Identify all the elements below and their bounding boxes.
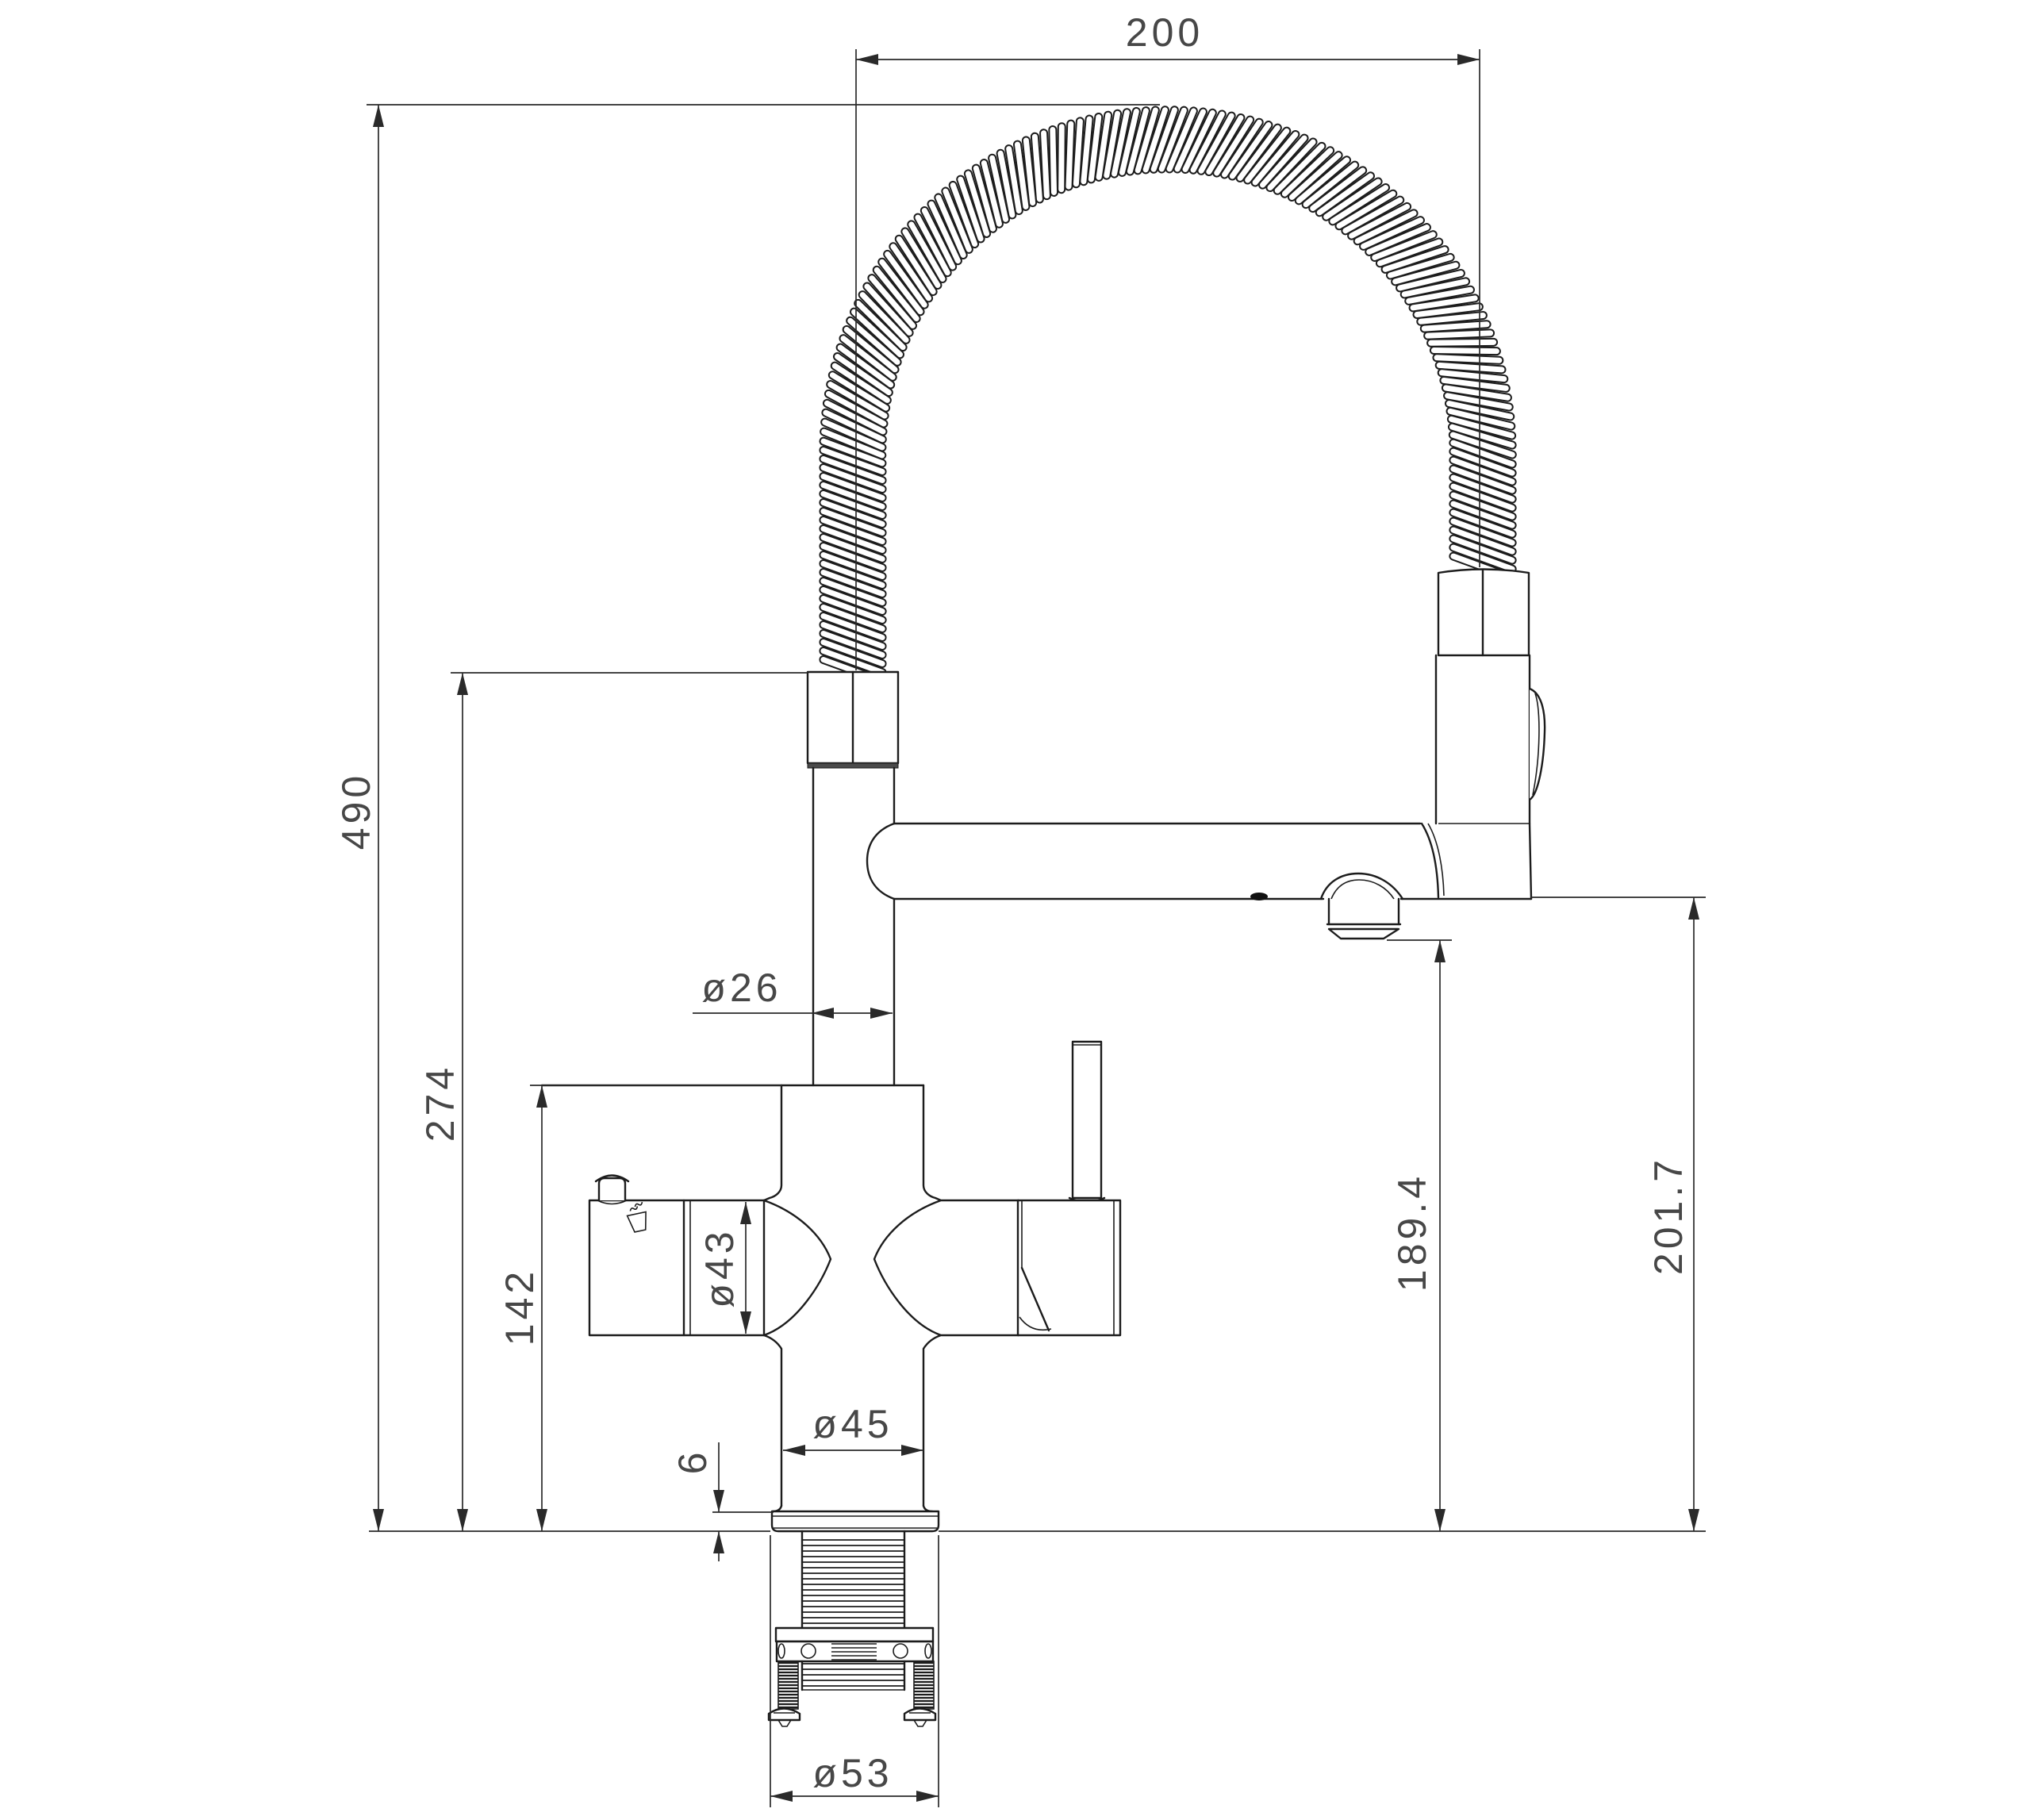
thread-lines-lower xyxy=(802,1664,904,1686)
dim-label-189-4: 189.4 xyxy=(1390,1173,1434,1292)
drawing-canvas: 200 490 274 142 ø26 ø43 xyxy=(0,0,2031,1820)
dim-label-d43: ø43 xyxy=(697,1227,742,1307)
mounting-flange xyxy=(776,1628,933,1641)
mounting-bolt-left xyxy=(769,1661,800,1726)
spring-hose xyxy=(819,106,1517,685)
thread-lines-upper xyxy=(802,1540,904,1623)
handle-lever xyxy=(1018,1042,1120,1335)
coil-bar xyxy=(1058,123,1065,193)
dim-label-6: 6 xyxy=(670,1449,715,1475)
bolt-head-left xyxy=(769,1709,800,1721)
dim-aerator-outlet-height: 189.4 xyxy=(1387,940,1452,1531)
dim-body-diameter: ø45 xyxy=(783,1402,923,1456)
left-wing-cone xyxy=(764,1200,831,1335)
dim-label-274: 274 xyxy=(418,1064,463,1142)
handle-stick xyxy=(1073,1042,1101,1198)
dim-hose-connection-height: 274 xyxy=(418,673,808,1531)
arm-end-cap xyxy=(867,824,894,899)
hose-collar-nut xyxy=(808,672,898,768)
dim-escutcheon-diameter: ø53 xyxy=(770,1535,939,1807)
threaded-shank xyxy=(769,1531,935,1726)
dim-label-d53: ø53 xyxy=(812,1751,893,1795)
deck-plate xyxy=(772,1511,939,1531)
right-wing-cone xyxy=(874,1200,941,1335)
dim-label-d45: ø45 xyxy=(812,1402,893,1446)
coil-bar xyxy=(1427,339,1497,347)
dim-riser-diameter: ø26 xyxy=(693,966,893,1019)
coil-bar xyxy=(1049,126,1058,196)
spray-head xyxy=(1436,570,1545,900)
holder-joint-curve xyxy=(1422,824,1438,897)
dim-deck-plate-thickness: 6 xyxy=(670,1442,774,1561)
spout-arm xyxy=(867,824,1531,900)
set-screw-dot xyxy=(1250,893,1268,900)
dim-label-200: 200 xyxy=(1126,10,1204,55)
dim-label-142: 142 xyxy=(497,1268,542,1346)
filter-button xyxy=(599,1178,625,1200)
spray-head-skirt xyxy=(1530,824,1531,899)
dim-label-d26: ø26 xyxy=(701,966,781,1010)
dim-spout-outlet-height: 201.7 xyxy=(1531,897,1706,1531)
dim-label-201-7: 201.7 xyxy=(1646,1156,1691,1275)
faucet-technical-drawing: 200 490 274 142 ø26 ø43 xyxy=(0,0,2031,1820)
bolt-head-right xyxy=(904,1709,935,1721)
riser-pipe xyxy=(813,768,894,1085)
dim-label-490: 490 xyxy=(334,772,378,850)
mounting-bolt-right xyxy=(904,1661,935,1726)
handle-body xyxy=(1018,1200,1120,1335)
aerator-nozzle xyxy=(1321,874,1403,939)
